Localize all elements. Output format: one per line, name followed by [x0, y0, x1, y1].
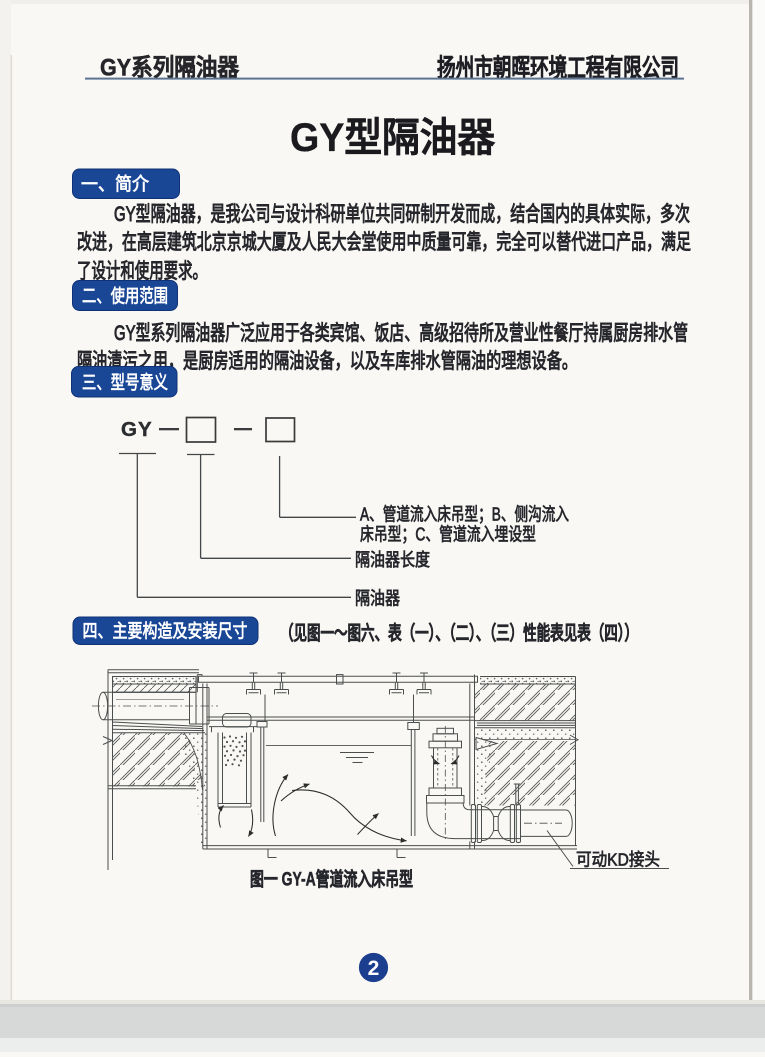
- svg-text:GY型系列隔油器广泛应用于各类宾馆、饭店、高级招待所及营业性: GY型系列隔油器广泛应用于各类宾馆、饭店、高级招待所及营业性餐厅持属厨房排水管: [114, 322, 688, 345]
- svg-text:二、使用范围: 二、使用范围: [82, 286, 168, 307]
- svg-text:四、主要构造及安装尺寸: 四、主要构造及安装尺寸: [83, 621, 248, 642]
- svg-text:改进，在高层建筑北京京城大厦及人民大会堂使用中质量可靠，完全: 改进，在高层建筑北京京城大厦及人民大会堂使用中质量可靠，完全可以替代进口产品，满…: [77, 231, 691, 254]
- svg-text:三、型号意义: 三、型号意义: [82, 372, 168, 393]
- svg-text:隔油器: 隔油器: [355, 589, 400, 609]
- svg-text:GY型隔油器: GY型隔油器: [290, 116, 496, 160]
- svg-text:A、管道流入床吊型；B、侧沟流入: A、管道流入床吊型；B、侧沟流入: [360, 505, 569, 525]
- svg-text:可动KD接头: 可动KD接头: [576, 850, 660, 870]
- svg-text:GY系列隔油器: GY系列隔油器: [100, 55, 240, 82]
- svg-text:床吊型；C、管道流入埋设型: 床吊型；C、管道流入埋设型: [360, 525, 536, 545]
- svg-text:（见图一～图六、表（一）、（二）、（三）性能表见表（四））: （见图一～图六、表（一）、（二）、（三）性能表见表（四））: [280, 622, 638, 645]
- svg-text:GY型隔油器，是我公司与设计科研单位共同研制开发而成，结合国: GY型隔油器，是我公司与设计科研单位共同研制开发而成，结合国内的具体实际，多次: [114, 203, 690, 226]
- svg-text:一、简介: 一、简介: [81, 174, 149, 195]
- svg-text:了设计和使用要求。: 了设计和使用要求。: [77, 260, 207, 283]
- svg-text:隔油器长度: 隔油器长度: [355, 550, 430, 570]
- svg-text:2: 2: [368, 957, 380, 980]
- svg-text:图一 GY-A管道流入床吊型: 图一 GY-A管道流入床吊型: [250, 868, 413, 891]
- svg-text:GY: GY: [121, 418, 153, 441]
